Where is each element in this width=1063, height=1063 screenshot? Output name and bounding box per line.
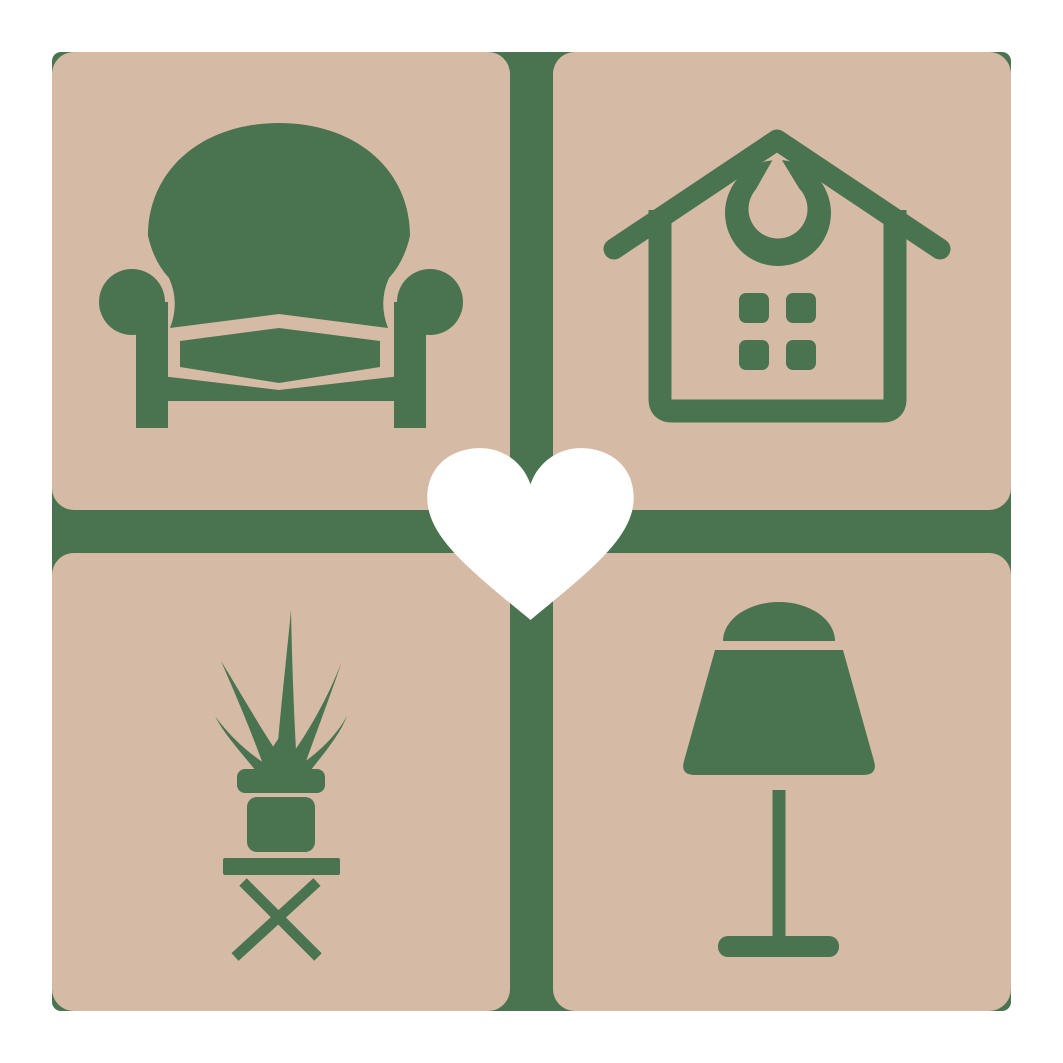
tile-lamp <box>553 553 1011 1011</box>
table-lamp-icon <box>553 553 1011 1011</box>
heart-icon <box>423 446 638 620</box>
tile-plant <box>52 553 510 1011</box>
house-icon <box>553 52 1011 510</box>
home-decor-logo <box>0 0 1063 1063</box>
tile-armchair <box>52 52 510 510</box>
armchair-icon <box>52 52 510 510</box>
potted-plant-icon <box>52 553 510 1011</box>
tile-house <box>553 52 1011 510</box>
